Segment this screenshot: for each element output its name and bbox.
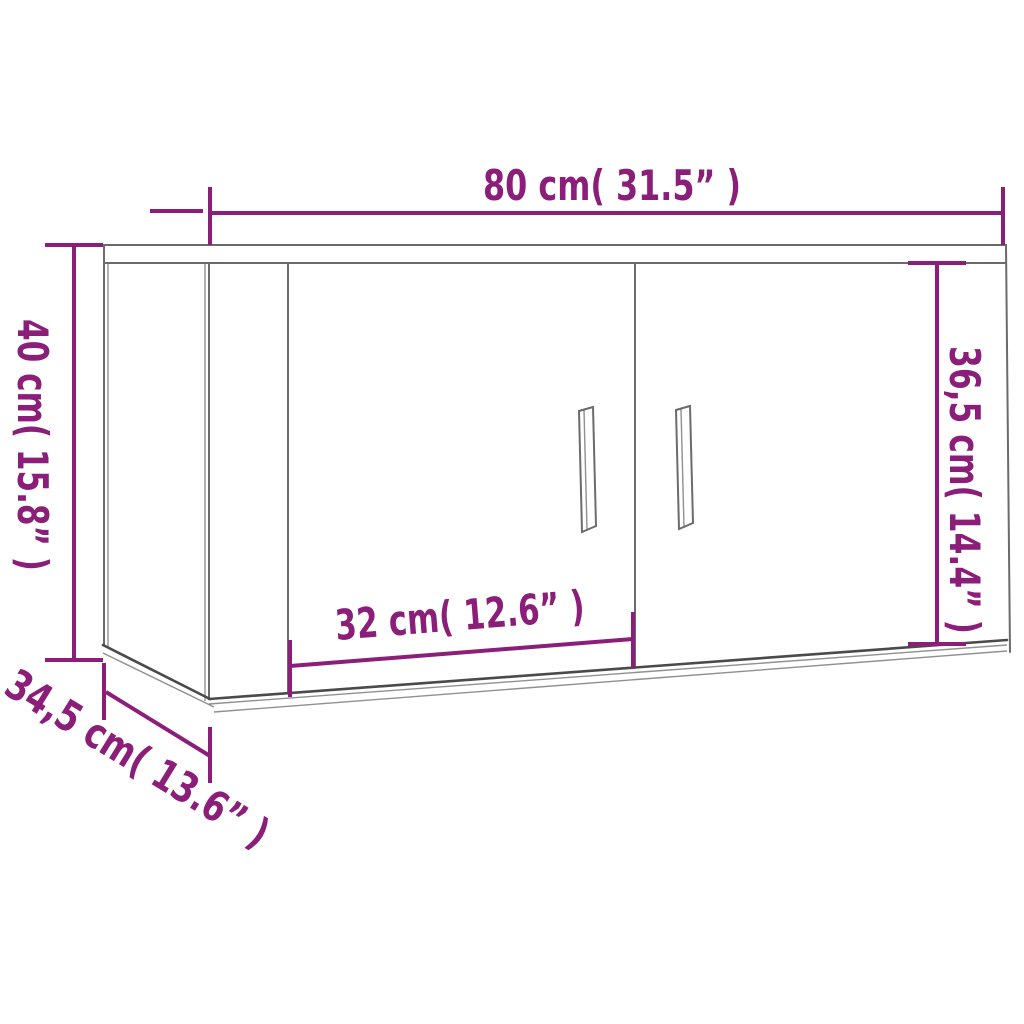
height-dimension-label: 40 cm( 15.8” ): [8, 319, 57, 571]
depth-dimension-label: 34,5 cm( 13.6” ): [0, 659, 278, 858]
side-panel-bottom-edge: [103, 645, 210, 699]
width-dimension: 80 cm( 31.5” ): [150, 161, 1003, 245]
cabinet-outline: [103, 245, 1010, 712]
front-height-dimension: 36,5 cm( 14.4” ): [908, 263, 989, 644]
door-width-dimension-label: 32 cm( 12.6” ): [333, 581, 586, 650]
bottom-panel-front-edge: [209, 645, 1007, 704]
bottom-panel-underside-edge: [214, 651, 1007, 712]
height-dimension: 40 cm( 15.8” ): [8, 245, 103, 660]
cabinet-dimension-drawing: 80 cm( 31.5” ) 40 cm( 15.8” ) 36,5 cm( 1…: [0, 0, 1024, 1024]
dimension-diagram: 80 cm( 31.5” ) 40 cm( 15.8” ) 36,5 cm( 1…: [0, 0, 1024, 1024]
right-door-handle: [676, 406, 693, 529]
width-dimension-label: 80 cm( 31.5” ): [483, 161, 741, 210]
cabinet-right-edge: [1006, 245, 1010, 652]
cabinet-bottom-front-edge: [209, 640, 1007, 699]
depth-dimension: 34,5 cm( 13.6” ): [0, 659, 278, 858]
left-door-handle: [579, 407, 596, 532]
front-height-dimension-label: 36,5 cm( 14.4” ): [940, 346, 989, 634]
